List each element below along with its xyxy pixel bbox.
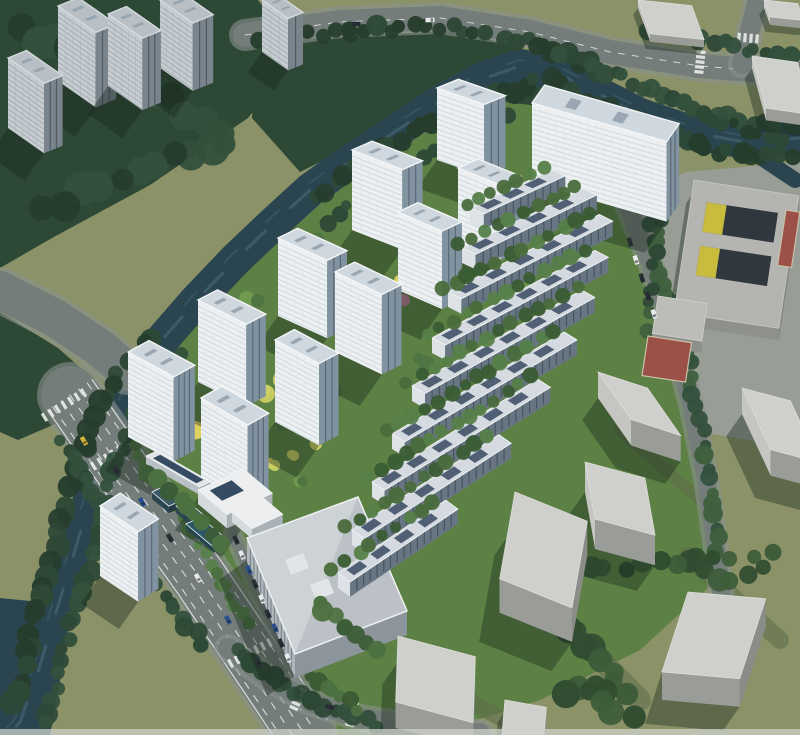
car (425, 18, 434, 23)
windshield (356, 22, 359, 26)
context-block-2 (759, 0, 800, 35)
sports-court-1 (642, 336, 692, 382)
car (351, 22, 360, 27)
rendering-canvas (0, 0, 800, 735)
bottom-edge-strip (0, 729, 800, 735)
windshield (430, 18, 433, 22)
aerial-site-rendering: Photorealistic aerial bird's-eye archite… (0, 0, 800, 735)
school-wing (652, 296, 707, 341)
